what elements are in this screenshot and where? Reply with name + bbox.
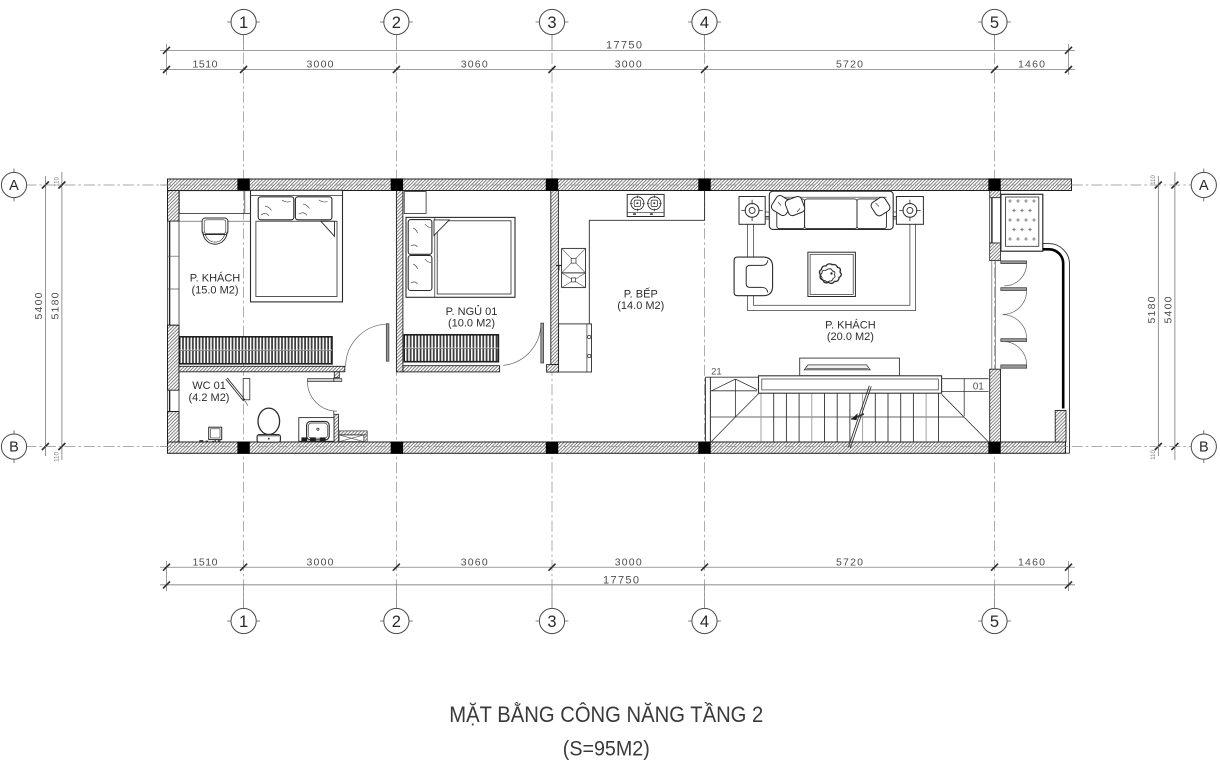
svg-text:A: A	[9, 178, 19, 194]
svg-text:5720: 5720	[836, 59, 863, 71]
svg-text:MẶT BẰNG CÔNG NĂNG TẦNG 2: MẶT BẰNG CÔNG NĂNG TẦNG 2	[449, 702, 763, 727]
svg-text:(15.0 M2): (15.0 M2)	[191, 285, 238, 297]
svg-text:1: 1	[239, 613, 248, 631]
svg-text:3000: 3000	[615, 59, 642, 71]
svg-text:3000: 3000	[307, 557, 334, 569]
svg-text:P. BẾP: P. BẾP	[624, 288, 658, 301]
svg-text:5180: 5180	[50, 292, 62, 319]
svg-text:1460: 1460	[1018, 59, 1045, 71]
svg-text:(10.0 M2): (10.0 M2)	[448, 317, 495, 329]
svg-text:P. KHÁCH: P. KHÁCH	[190, 272, 241, 285]
svg-text:(S=95M2): (S=95M2)	[563, 738, 650, 761]
svg-text:P. KHÁCH: P. KHÁCH	[825, 319, 876, 332]
svg-text:110: 110	[1151, 175, 1157, 185]
svg-text:(20.0 M2): (20.0 M2)	[827, 331, 874, 343]
svg-text:21: 21	[711, 367, 722, 378]
svg-text:1460: 1460	[1018, 557, 1045, 569]
svg-text:A: A	[1199, 178, 1209, 194]
svg-text:110: 110	[1151, 450, 1157, 460]
svg-text:3: 3	[547, 14, 556, 32]
svg-text:110: 110	[55, 452, 61, 462]
svg-text:17750: 17750	[603, 574, 639, 586]
svg-text:B: B	[9, 440, 19, 456]
svg-text:3060: 3060	[461, 557, 488, 569]
svg-text:(4.2 M2): (4.2 M2)	[189, 392, 230, 404]
svg-text:WC 01: WC 01	[192, 380, 226, 392]
svg-text:P. NGỦ 01: P. NGỦ 01	[446, 305, 498, 318]
svg-text:2: 2	[392, 14, 401, 32]
svg-text:5400: 5400	[1163, 296, 1175, 323]
svg-text:5: 5	[990, 613, 999, 631]
svg-text:1: 1	[239, 14, 248, 32]
svg-text:3: 3	[547, 613, 556, 631]
svg-text:5: 5	[990, 14, 999, 32]
svg-text:3060: 3060	[461, 59, 488, 71]
svg-text:4: 4	[700, 14, 709, 32]
svg-text:4: 4	[700, 613, 709, 631]
svg-text:3000: 3000	[615, 557, 642, 569]
svg-text:(14.0 M2): (14.0 M2)	[617, 300, 664, 312]
svg-text:3000: 3000	[307, 59, 334, 71]
svg-text:5180: 5180	[1146, 296, 1158, 323]
svg-text:1510: 1510	[193, 59, 218, 71]
svg-text:B: B	[1199, 440, 1209, 456]
svg-text:01: 01	[973, 381, 985, 392]
svg-text:5720: 5720	[836, 557, 863, 569]
svg-text:17750: 17750	[606, 40, 642, 52]
svg-text:2: 2	[392, 613, 401, 631]
svg-text:5400: 5400	[33, 292, 45, 319]
svg-text:1510: 1510	[193, 557, 218, 569]
